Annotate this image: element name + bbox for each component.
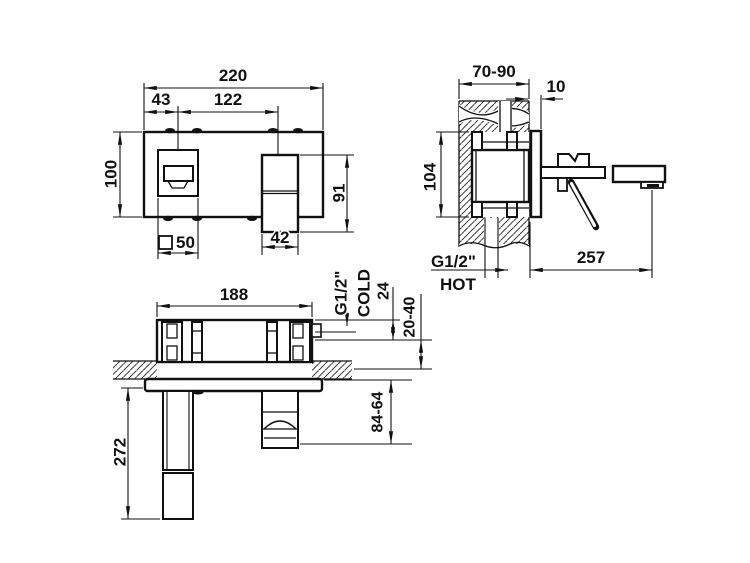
technical-drawing-canvas: 220 43 122 100 91 50 42 (0, 0, 750, 563)
dim-spout-square: 50 (176, 233, 195, 252)
handle-top-side (558, 154, 589, 167)
wall-plan-hatch-right (312, 361, 352, 379)
dim-handle-width: 42 (271, 228, 290, 247)
wall-plan-hatch-left (113, 361, 157, 379)
front-view: 220 43 122 100 91 50 42 (102, 66, 355, 259)
plan-view: 188 G1/2" COLD 24 20-40 84-64 272 (111, 269, 433, 519)
plan-view-wall (113, 361, 352, 379)
front-view-geometry (144, 128, 323, 232)
dim-spout-length: 272 (111, 438, 130, 466)
spout-tip-plan (163, 473, 193, 519)
dim-plate-height: 100 (102, 160, 121, 188)
faucet-dimension-drawing: 220 43 122 100 91 50 42 (0, 0, 750, 563)
spout-base-side (541, 167, 605, 178)
dim-body-height: 104 (421, 162, 440, 191)
hot-thread-label: G1/2" (431, 252, 476, 271)
dim-spout-offset: 43 (152, 90, 171, 109)
dim-total-width: 220 (219, 66, 247, 85)
side-view-body (472, 131, 665, 227)
handle-plan (262, 391, 298, 448)
hot-label: HOT (440, 275, 477, 294)
square-section-symbol (159, 236, 172, 249)
dim-inlet-offset: 24 (376, 282, 393, 300)
wall-plate-plan (145, 379, 322, 391)
plan-view-body (145, 320, 322, 519)
spout-front (164, 166, 193, 181)
side-view: 70-90 10 104 257 G1/2" HOT (421, 62, 666, 294)
cold-inlet-stub (312, 324, 321, 337)
cold-label: COLD (355, 269, 374, 317)
dim-center-distance: 122 (214, 90, 242, 109)
dim-spout-projection: 257 (577, 248, 605, 267)
spout-tip-side (613, 166, 665, 182)
dim-rough-in-width: 188 (220, 285, 248, 304)
cold-thread-label: G1/2" (332, 271, 351, 316)
wall-plate-side (531, 131, 541, 217)
dim-handle-projection: 84-64 (370, 391, 387, 432)
dim-wall-thickness: 70-90 (472, 62, 515, 81)
mounting-bracket (162, 322, 182, 362)
dim-recess-depth: 20-40 (402, 296, 419, 337)
in-wall-body (472, 150, 529, 202)
dim-plate-thickness: 10 (547, 77, 566, 96)
dim-handle-height: 91 (330, 184, 349, 203)
